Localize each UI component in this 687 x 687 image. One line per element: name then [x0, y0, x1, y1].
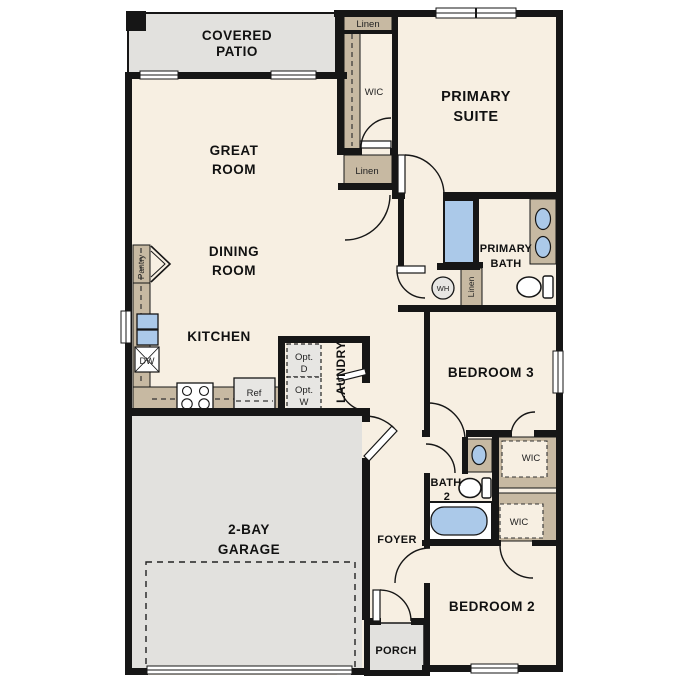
bedroom2-window: [471, 664, 518, 673]
svg-text:SUITE: SUITE: [453, 109, 498, 125]
room-label-primary-suite: PRIMARY: [441, 89, 511, 105]
bath2-tub-icon: [426, 502, 492, 540]
svg-text:BATH: BATH: [491, 258, 522, 270]
closet-label-wic-bedroom2: WIC: [510, 517, 529, 528]
room-label-bedroom3: BEDROOM 3: [448, 365, 534, 380]
closet-label-linen-hall: Linen: [466, 276, 476, 297]
opt-washer-label: Opt.: [295, 385, 313, 396]
closet-label-linen-top: Linen: [356, 19, 379, 30]
floor-plan-page: COVERED PATIO Linen WIC PRIMARY SUITE GR…: [0, 0, 687, 687]
svg-text:ROOM: ROOM: [212, 162, 256, 177]
room-label-great-room: GREAT: [210, 143, 259, 158]
floor-plan-drawing: COVERED PATIO Linen WIC PRIMARY SUITE GR…: [0, 0, 687, 687]
svg-text:W: W: [300, 397, 309, 408]
primary-sink2-icon: [536, 237, 551, 258]
dishwasher-label: DW: [140, 356, 155, 366]
room-label-bath2: BATH: [431, 477, 462, 489]
closet-label-pantry: Pantry: [136, 254, 146, 279]
closet-label-wic-bedroom3: WIC: [522, 453, 541, 464]
room-label-garage: 2-BAY: [228, 522, 270, 537]
bedroom3-window: [553, 351, 563, 393]
svg-text:D: D: [301, 364, 308, 375]
primary-sink1-icon: [536, 209, 551, 230]
water-heater-label: WH: [437, 284, 450, 293]
kitchen-sink-icon: [137, 314, 158, 329]
kitchen-window: [121, 311, 131, 343]
primary-shower-icon: [444, 200, 474, 263]
closet-label-linen-mid: Linen: [355, 166, 378, 177]
room-label-covered-patio: COVERED: [202, 28, 272, 43]
main-floor-right: [337, 14, 560, 672]
room-label-kitchen: KITCHEN: [187, 329, 251, 344]
room-label-foyer: FOYER: [377, 534, 416, 546]
svg-text:ROOM: ROOM: [212, 263, 256, 278]
room-label-porch: PORCH: [375, 645, 416, 657]
svg-text:PATIO: PATIO: [216, 44, 258, 59]
svg-text:2: 2: [444, 491, 450, 503]
refrigerator-label: Ref: [247, 388, 262, 399]
room-label-laundry: LAUNDRY: [334, 341, 348, 403]
room-label-dining-room: DINING: [209, 244, 259, 259]
room-label-bedroom2: BEDROOM 2: [449, 599, 535, 614]
bath2-toilet-icon: [459, 478, 491, 498]
closet-label-wic-top: WIC: [365, 87, 384, 98]
primary-suite-window: [436, 8, 516, 18]
svg-text:GARAGE: GARAGE: [218, 542, 280, 557]
opt-dryer-label: Opt.: [295, 352, 313, 363]
stove-icon: [177, 383, 213, 412]
bath2-sink-icon: [472, 446, 486, 465]
primary-toilet-icon: [517, 276, 553, 298]
room-label-primary-bath: PRIMARY: [480, 243, 533, 255]
garage-door-opening: [147, 666, 352, 674]
